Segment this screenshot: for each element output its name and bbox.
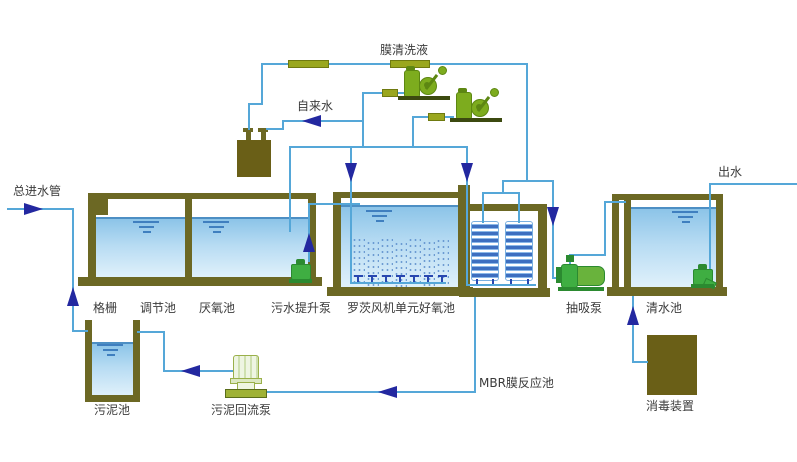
membrane-module: [471, 221, 499, 281]
mbr-top-rim: [466, 204, 542, 211]
water-surface-mark: [672, 211, 700, 224]
aerobic-bottom: [327, 287, 473, 296]
mbr-diffuser: [510, 279, 512, 284]
pipe-cleaning-drop: [526, 63, 528, 181]
clean-inner-wall: [624, 200, 631, 295]
label-sludge-return-pump: 污泥回流泵: [211, 403, 271, 417]
aerobic-top-rim: [333, 192, 466, 198]
pipe-pump-outlet-v: [604, 201, 606, 256]
label-regulating-tank: 调节池: [140, 301, 176, 315]
pipe-cleaning-left-h: [248, 103, 262, 105]
pipe-sludge-tank-inlet: [137, 331, 164, 333]
flow-arrow-aerobic-air: [345, 163, 357, 182]
mbr-bottom: [459, 288, 550, 297]
pipe-module2-riser: [518, 192, 520, 223]
flow-arrow-sludge-return-up: [67, 287, 79, 306]
label-outlet: 出水: [718, 165, 742, 179]
pipe-inlet-sludge-riser: [72, 208, 74, 332]
pipe-drop-anaerobic: [289, 146, 291, 232]
pipe-into-clean-tank: [604, 201, 626, 203]
mbr-right-wall: [538, 204, 547, 295]
water-surface-mark: [133, 221, 161, 234]
pipe-permeate-down: [552, 180, 554, 278]
label-membrane-cleaning: 膜清洗液: [380, 43, 428, 57]
mbr-diffuser: [476, 279, 478, 284]
mbr-diffuser: [492, 279, 494, 284]
pipe-sludge-pump-in: [258, 391, 476, 393]
label-mbr-tank: MBR膜反应池: [479, 376, 554, 390]
label-aerobic-tank: 罗茨风机单元好氧池: [347, 301, 455, 315]
label-disinfection: 消毒装置: [646, 399, 694, 413]
label-tap-water: 自来水: [297, 99, 333, 113]
mbr-diffuser: [527, 279, 529, 284]
aerobic-diffuser-manifold-pipe: [351, 282, 446, 284]
pipe-sludge-v: [163, 331, 165, 371]
label-lift-pump: 污水提升泵: [271, 301, 331, 315]
label-clean-water-tank: 清水池: [646, 301, 682, 315]
pipe-module-manifold: [482, 192, 520, 194]
valve: [288, 60, 329, 68]
disinfection-device-box: [647, 335, 697, 395]
bar-screen-block: [96, 199, 108, 215]
pipe-air-manifold: [289, 146, 468, 148]
water-surface-mark: [97, 344, 125, 357]
flow-arrow-tap-water: [302, 115, 321, 127]
pipe-blower2-drop: [412, 117, 414, 147]
roots-blower-icon: [450, 86, 502, 124]
pipe-module1-riser: [482, 192, 484, 223]
pipe-outlet: [709, 183, 797, 185]
process-flow-diagram: 总进水管 膜清洗液 自来水 出水 格栅 调节池 厌氧池 污水提升泵 罗茨风机单元…: [0, 0, 797, 462]
aerobic-left-wall: [333, 192, 341, 295]
cleaning-liquid-tank: [237, 140, 271, 177]
sludge-left-wall: [85, 320, 92, 402]
flow-arrow-disinfection: [627, 306, 639, 325]
tank1-left-wall: [88, 193, 96, 285]
roots-blower-icon: [398, 64, 450, 102]
flow-arrow-permeate: [547, 207, 559, 226]
pipe-lift-pump-discharge: [308, 203, 360, 205]
flow-arrow-mbr-air: [461, 163, 473, 182]
sludge-bottom: [85, 395, 140, 402]
water-surface-mark: [366, 210, 394, 223]
tank1-bottom: [78, 277, 322, 286]
water-surface-mark: [203, 221, 231, 234]
flow-arrow-lift-riser: [303, 233, 315, 252]
mbr-bottom-air-manifold: [468, 284, 536, 286]
clean-outer-left-wall: [612, 194, 619, 295]
flow-arrow-to-sludge-tank: [181, 365, 200, 377]
clean-water-pump-icon: [691, 264, 715, 289]
tank1-water: [96, 217, 308, 279]
tank1-top-rim: [88, 193, 316, 199]
flow-arrow-mbr-drain: [378, 386, 397, 398]
pipe-tap-water-elbow-h: [266, 128, 283, 130]
membrane-module: [505, 221, 533, 281]
label-sludge-tank: 污泥池: [94, 403, 130, 417]
label-main-inlet: 总进水管: [13, 184, 61, 198]
pipe-permeate-header: [502, 180, 554, 182]
pipe-cleaning-left-v2: [248, 103, 250, 130]
valve: [428, 113, 445, 121]
label-suction-pump: 抽吸泵: [566, 301, 602, 315]
clean-right-wall: [716, 194, 723, 295]
flow-arrow-inlet: [24, 203, 43, 215]
valve: [382, 89, 398, 97]
sludge-return-pump-icon: [224, 355, 266, 397]
label-anaerobic-tank: 厌氧池: [199, 301, 235, 315]
pipe-mbr-drain: [474, 297, 476, 392]
pipe-to-sludge-tank: [72, 330, 88, 332]
sewage-lift-pump-icon: [289, 259, 313, 284]
label-bar-screen: 格栅: [93, 301, 117, 315]
suction-pump-icon: [556, 255, 606, 292]
pipe-cleaning-left-v: [261, 63, 263, 105]
pipe-outlet-riser: [709, 183, 711, 273]
aerobic-mbr-shared-wall: [458, 185, 470, 295]
pipe-tap-water: [283, 120, 363, 122]
pipe-disinfection-h: [632, 361, 648, 363]
tank1-divider-wall: [185, 193, 192, 285]
